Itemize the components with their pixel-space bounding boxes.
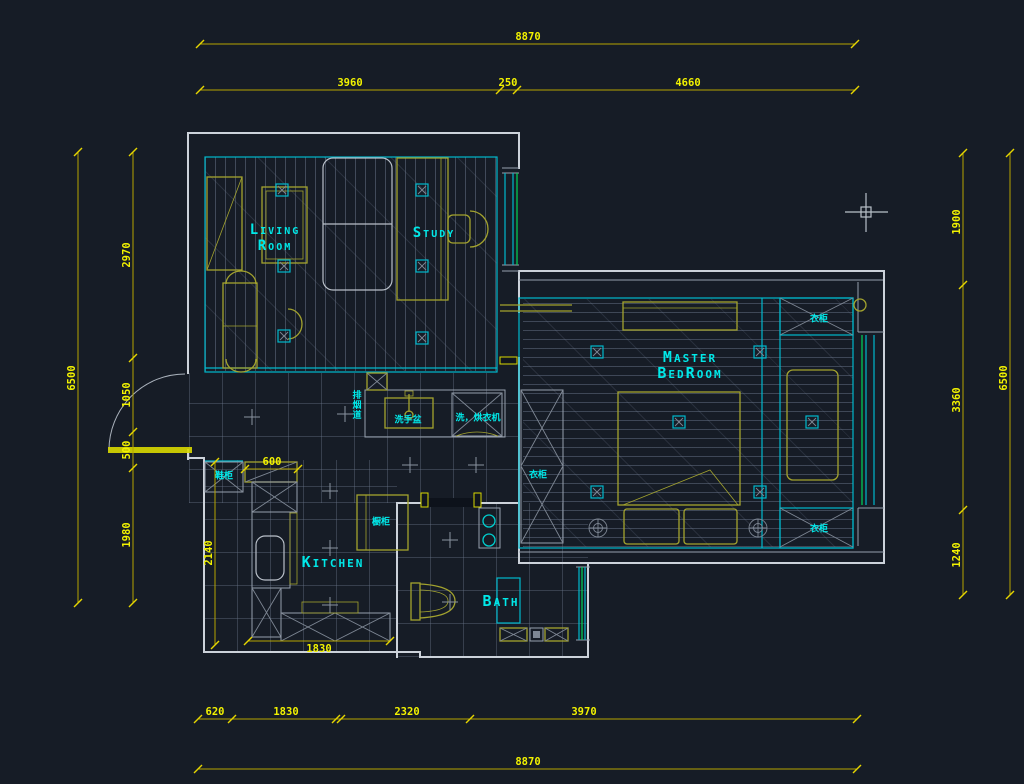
downlight-icon	[416, 332, 428, 344]
dim-top-seg-2: 250	[499, 77, 518, 89]
master-label-line2: BedRoom	[657, 365, 722, 381]
dim-bottom-seg-4: 3970	[571, 706, 596, 718]
downlight-icon	[754, 486, 766, 498]
bath-door	[421, 493, 481, 507]
dim-right-seg-1: 1900	[951, 209, 963, 234]
flue-label: 排烟道	[350, 390, 363, 420]
downlight-icon	[416, 260, 428, 272]
window-study-right	[505, 173, 517, 265]
plan-linework	[0, 0, 1024, 784]
room-label-living: Living Room	[250, 222, 301, 254]
bedroom-sliding-door	[500, 305, 572, 364]
cupboard-label: 橱柜	[372, 515, 390, 528]
dim-bottom-overall: 8870	[515, 756, 540, 768]
wash-basin-label: 洗手盆	[394, 413, 421, 426]
downlight-icon	[278, 330, 290, 342]
downlight-icon	[591, 346, 603, 358]
wardrobe-left	[521, 390, 563, 543]
bath-vanity-sinks	[479, 508, 500, 548]
room-label-bath: Bath	[483, 593, 520, 609]
dim-kitchen-height: 2140	[203, 540, 215, 565]
wardrobe-top-right-label: 衣柜	[810, 312, 828, 325]
downlight-icon	[754, 346, 766, 358]
downlight-icon	[278, 260, 290, 272]
dim-right-seg-2: 3360	[951, 387, 963, 412]
shoe-cabinet-label: 鞋柜	[215, 469, 233, 482]
room-label-study: Study	[413, 225, 456, 241]
dim-bottom-seg-1: 620	[206, 706, 225, 718]
living-label-line2: Room	[250, 238, 301, 254]
bedroom-dresser-right	[787, 370, 838, 480]
dim-left-seg-4: 1980	[121, 522, 133, 547]
downlight-icon	[416, 184, 428, 196]
crosshair-cursor[interactable]	[845, 193, 888, 232]
downlight-icon	[673, 416, 685, 428]
downlight-icon	[806, 416, 818, 428]
wardrobe-bottom-right-label: 衣柜	[810, 522, 828, 535]
dim-right-seg-3: 1240	[951, 542, 963, 567]
living-label-line1: Living	[250, 222, 301, 238]
downlight-icons	[276, 184, 818, 498]
column-marker	[854, 299, 866, 311]
bath-storage-boxes	[500, 628, 568, 641]
room-label-master-bedroom: Master BedRoom	[657, 349, 722, 381]
dim-right-overall: 6500	[998, 365, 1010, 390]
wardrobe-left-label: 衣柜	[529, 468, 547, 481]
bed	[618, 392, 740, 544]
dim-bottom-seg-2: 1830	[273, 706, 298, 718]
washer-dryer-label: 洗，烘衣机	[455, 411, 500, 424]
room-label-kitchen: Kitchen	[302, 554, 365, 570]
bedside-lamp-right	[749, 519, 767, 537]
bedroom-dresser-top	[623, 302, 737, 330]
bedside-lamp-left	[589, 519, 607, 537]
flue-shaft	[367, 373, 387, 390]
room-borders	[205, 157, 853, 548]
dim-top-overall: 8870	[515, 31, 540, 43]
dim-bottom-seg-3: 2320	[394, 706, 419, 718]
master-label-line1: Master	[657, 349, 722, 365]
tv-cabinet	[207, 177, 242, 270]
downlight-icon	[591, 486, 603, 498]
dim-top-seg-3: 4660	[675, 77, 700, 89]
dim-shoe-cabinet-width: 600	[263, 456, 282, 468]
dim-left-seg-3: 500	[121, 441, 133, 460]
dim-top-seg-1: 3960	[337, 77, 362, 89]
dining-table	[223, 271, 302, 372]
window-bath-right	[579, 567, 585, 640]
cad-floor-plan: Living Room Study Master BedRoom Kitchen…	[0, 0, 1024, 784]
dim-left-overall: 6500	[66, 365, 78, 390]
window-bedroom-right	[862, 335, 874, 505]
dimension-lines	[74, 40, 1014, 773]
downlight-icon	[276, 184, 288, 196]
sofa	[323, 158, 392, 290]
dim-left-seg-1: 2970	[121, 242, 133, 267]
dim-kitchen-width: 1830	[306, 643, 331, 655]
dim-left-seg-2: 1050	[121, 382, 133, 407]
